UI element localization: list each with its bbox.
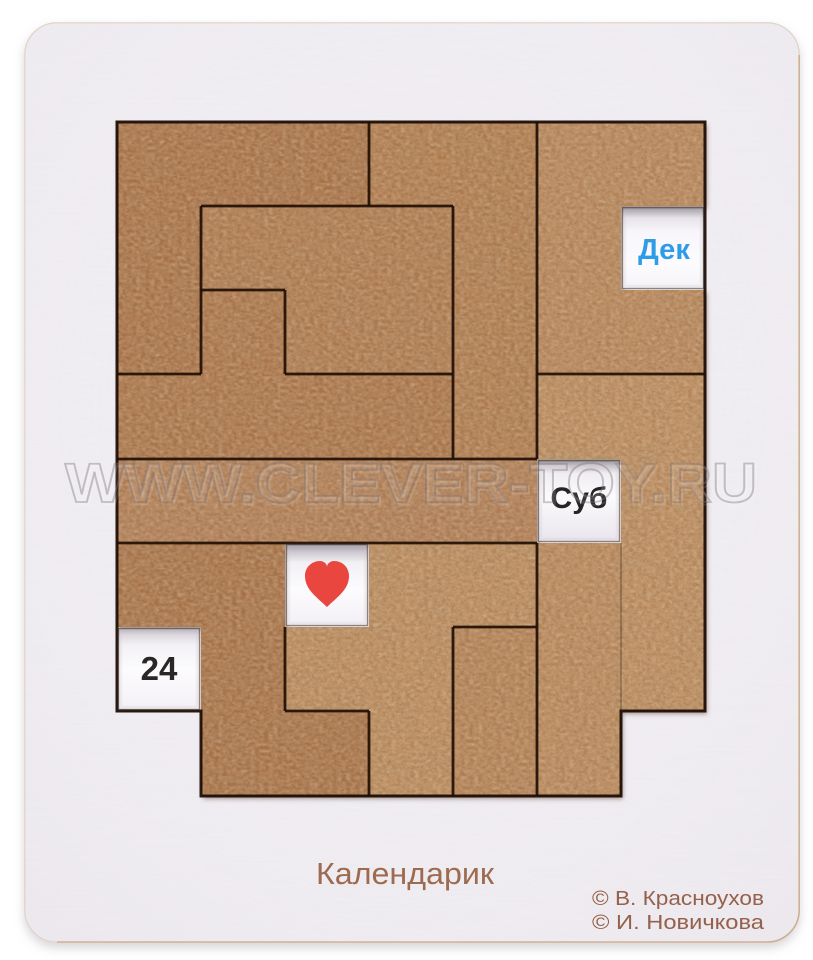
svg-text:© И. Новичкова: © И. Новичкова <box>592 911 765 934</box>
svg-text:WWW.CLEVER-TOY.RU: WWW.CLEVER-TOY.RU <box>65 451 757 514</box>
svg-text:Календарик: Календарик <box>316 856 494 891</box>
svg-text:Дек: Дек <box>638 234 690 266</box>
svg-text:© В. Красноухов: © В. Красноухов <box>592 887 764 910</box>
svg-text:24: 24 <box>141 650 178 687</box>
